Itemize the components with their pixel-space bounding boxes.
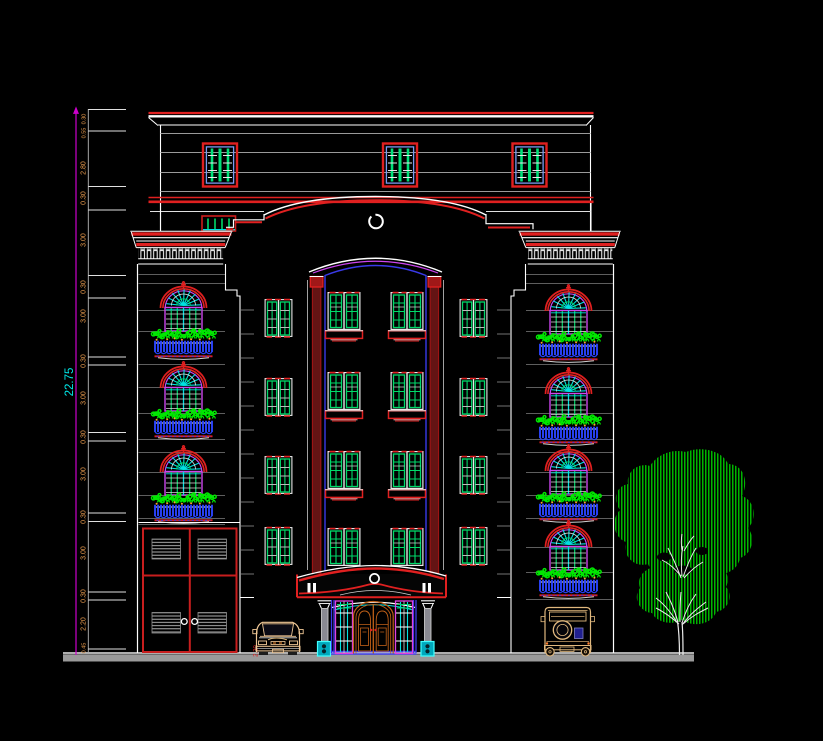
svg-text:0.55: 0.55 (82, 128, 88, 139)
svg-text:3.00: 3.00 (81, 391, 88, 405)
svg-text:3.00: 3.00 (81, 309, 88, 323)
svg-text:0.30: 0.30 (81, 191, 88, 205)
svg-text:0.30: 0.30 (81, 430, 88, 444)
svg-text:0.30: 0.30 (81, 589, 88, 603)
svg-text:3.00: 3.00 (81, 546, 88, 560)
svg-text:2.80: 2.80 (81, 161, 88, 175)
svg-text:3.00: 3.00 (81, 467, 88, 481)
svg-text:0.45: 0.45 (82, 643, 88, 654)
svg-text:0.30: 0.30 (81, 354, 88, 368)
svg-text:22.75: 22.75 (64, 368, 76, 397)
svg-text:0.30: 0.30 (82, 114, 88, 125)
svg-text:0.30: 0.30 (81, 510, 88, 524)
svg-text:3.00: 3.00 (81, 233, 88, 247)
svg-text:0.30: 0.30 (81, 280, 88, 294)
svg-text:2.20: 2.20 (81, 617, 88, 631)
